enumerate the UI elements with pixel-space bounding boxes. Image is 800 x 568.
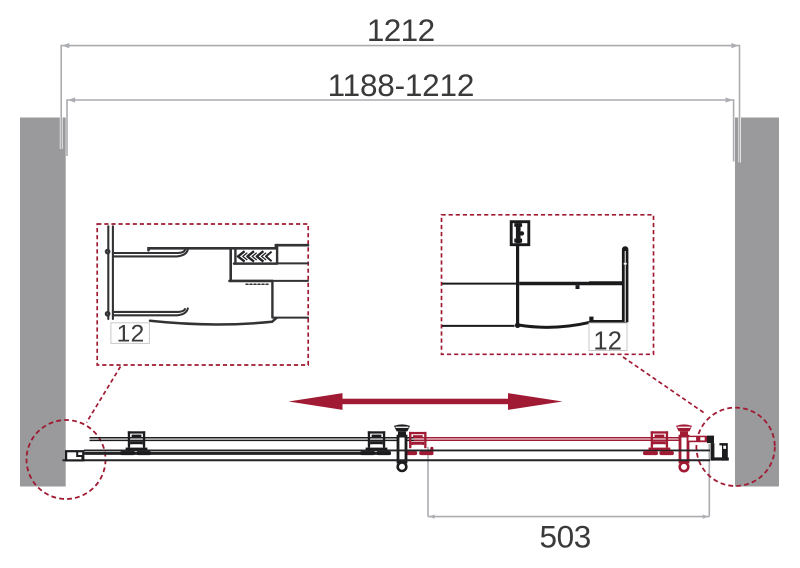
svg-text:1212: 1212 [367,12,435,48]
svg-text:12: 12 [117,320,145,347]
svg-text:503: 503 [540,519,591,555]
svg-text:12: 12 [593,328,622,356]
svg-text:1188-1212: 1188-1212 [328,67,475,103]
